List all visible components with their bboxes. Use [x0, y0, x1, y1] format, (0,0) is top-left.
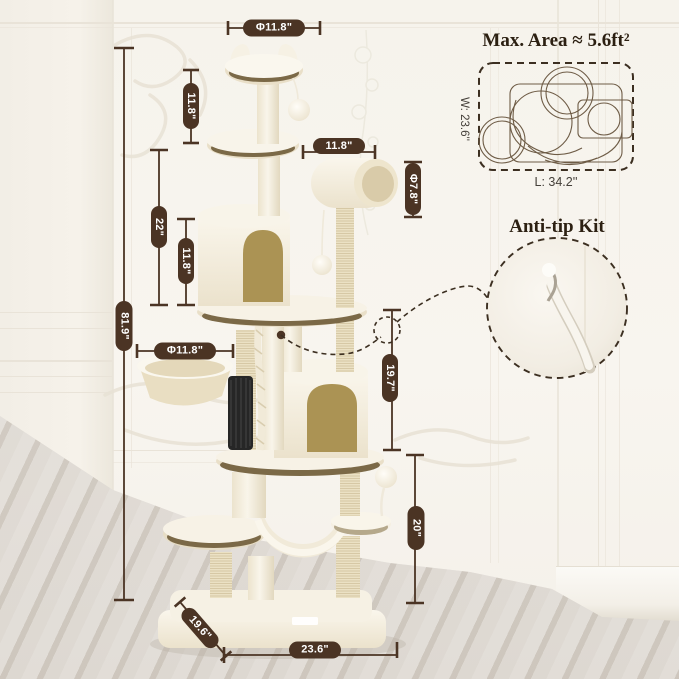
dim-pill-mid-right-height: 19.7"	[382, 354, 398, 402]
area-width-label: W: 23.6''	[458, 97, 470, 141]
dim-pill-base-width: 23.6"	[289, 642, 341, 659]
plush-post	[258, 154, 280, 216]
brand-label-chip	[292, 617, 318, 625]
anti-tip-title: Anti-tip Kit	[509, 216, 605, 238]
scratching-post	[210, 552, 232, 598]
dim-pill-basket-diameter: Φ11.8"	[154, 343, 216, 360]
dim-pill-top-section-height: 11.8"	[183, 83, 199, 129]
product-dimension-image: Max. Area ≈ 5.6ft² W: 23.6'' L: 34.2'' A…	[0, 0, 679, 679]
plush-post	[257, 78, 279, 144]
plush-post	[232, 472, 266, 518]
plush-post	[248, 556, 274, 600]
dim-pill-lower-right-height: 20"	[408, 506, 425, 550]
condo-door	[307, 384, 357, 452]
anchor-screw	[542, 263, 556, 277]
scratching-post	[336, 206, 354, 308]
dim-pill-condo-height: 11.8"	[178, 238, 194, 284]
dim-pill-tube-diameter: Φ7.8"	[405, 163, 421, 215]
dim-pill-top-perch-diameter: Φ11.8"	[243, 20, 305, 37]
area-length-label: L: 34.2''	[535, 175, 578, 189]
condo-door	[243, 230, 283, 302]
spring-toy	[381, 488, 384, 516]
pom-ball	[375, 466, 397, 488]
pom-ball	[312, 255, 332, 275]
scratching-post	[336, 536, 360, 598]
dim-pill-upper-section-height: 22"	[151, 206, 167, 248]
scratching-post	[336, 320, 354, 372]
pom-ball	[288, 99, 310, 121]
anchor-point-circle	[374, 317, 400, 343]
scene-art	[0, 0, 679, 679]
scratching-post	[340, 470, 360, 516]
dim-pill-shelf-width: 11.8"	[313, 138, 365, 154]
dim-pill-overall-height: 81.9"	[116, 301, 133, 351]
max-area-sketch	[479, 63, 633, 170]
max-area-title: Max. Area ≈ 5.6ft²	[482, 30, 629, 52]
